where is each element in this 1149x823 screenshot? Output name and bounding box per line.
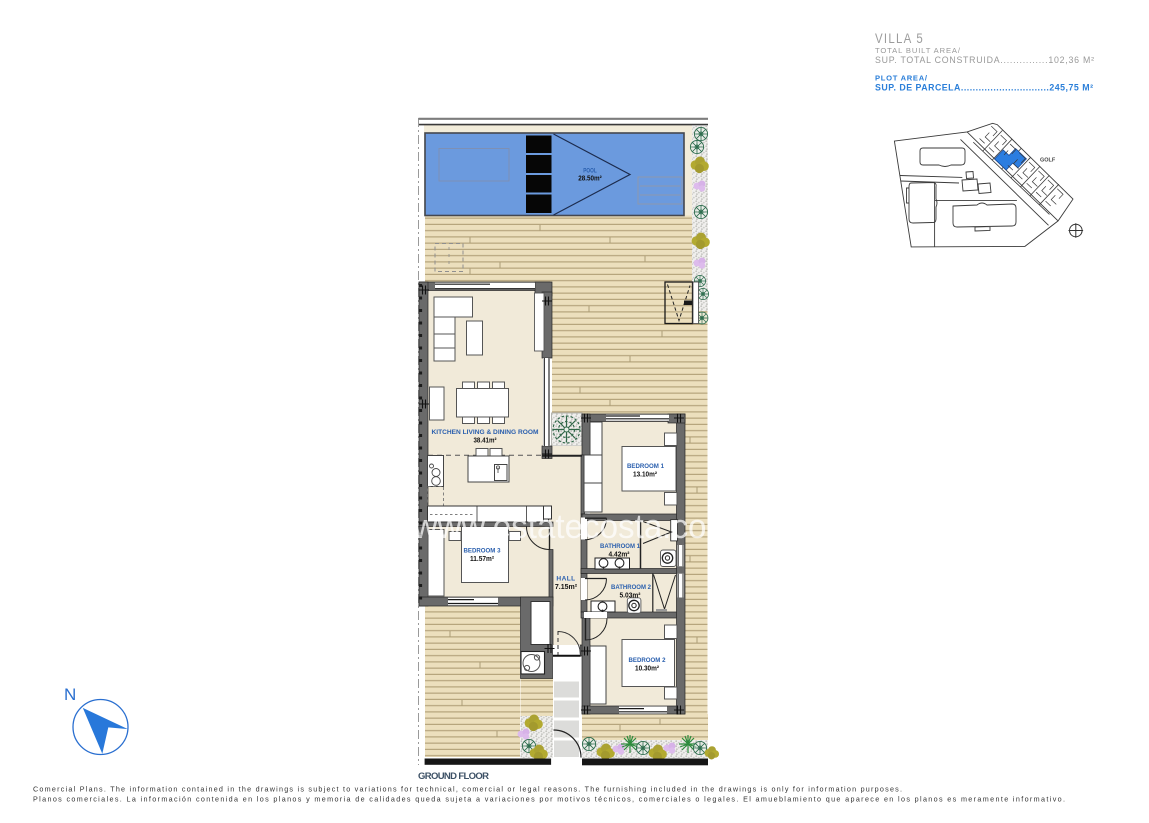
svg-text:SUP. TOTAL CONSTRUIDA.........: SUP. TOTAL CONSTRUIDA...............102,… (875, 55, 1094, 65)
svg-text:4.42m²: 4.42m² (609, 552, 631, 559)
svg-text:BEDROOM 1: BEDROOM 1 (627, 463, 664, 470)
svg-text:BEDROOM 3: BEDROOM 3 (464, 548, 501, 555)
svg-text:BATHROOM 2: BATHROOM 2 (611, 584, 651, 591)
svg-text:13.10m²: 13.10m² (633, 472, 658, 479)
svg-text:TOTAL BUILT AREA/: TOTAL BUILT AREA/ (875, 46, 961, 55)
svg-text:POOL: POOL (583, 169, 597, 175)
svg-text:VILLA 5: VILLA 5 (875, 31, 924, 46)
svg-text:10.30m²: 10.30m² (635, 666, 660, 673)
svg-text:HALL: HALL (556, 576, 575, 583)
svg-text:Comercial Plans. The informati: Comercial Plans. The information contain… (33, 785, 902, 794)
svg-text:GROUND FLOOR: GROUND FLOOR (418, 771, 490, 782)
svg-text:28.50m²: 28.50m² (578, 176, 602, 183)
svg-text:GOLF: GOLF (1040, 158, 1056, 164)
svg-text:KITCHEN LIVING & DINING: KITCHEN LIVING & DINING ROOM (432, 429, 540, 436)
svg-text:7.15m²: 7.15m² (555, 584, 578, 591)
svg-text:SUP. DE PARCELA...............: SUP. DE PARCELA.........................… (875, 83, 1093, 93)
svg-text:5.03m²: 5.03m² (620, 593, 642, 600)
svg-text:PLOT AREA/: PLOT AREA/ (875, 74, 928, 83)
svg-text:BEDROOM 2: BEDROOM 2 (629, 657, 666, 664)
svg-text:11.57m²: 11.57m² (470, 556, 495, 563)
svg-text:N: N (64, 685, 76, 704)
svg-text:38.41m²: 38.41m² (474, 438, 498, 445)
svg-text:www.estatecosta.co: www.estatecosta.co (413, 508, 707, 546)
